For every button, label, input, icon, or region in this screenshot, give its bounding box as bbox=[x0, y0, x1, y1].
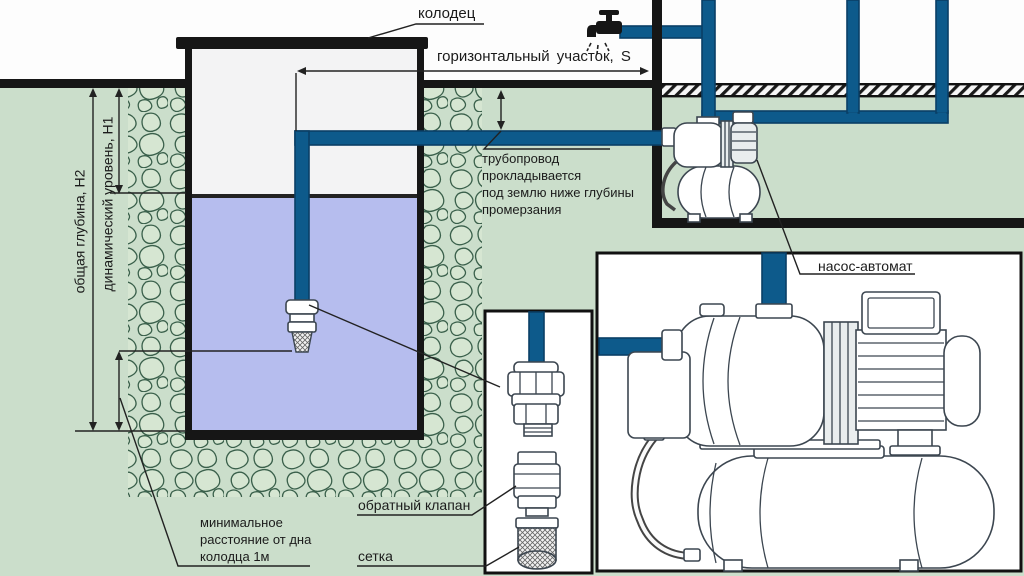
label-pipeline-note: трубопровод прокладывается под землю ниж… bbox=[482, 150, 634, 218]
basement-floor bbox=[652, 218, 1024, 228]
outlet-flange bbox=[756, 304, 792, 318]
label-check-valve: обратный клапан bbox=[358, 497, 470, 514]
diagram-stage: колодец горизонтальный участок, S трубоп… bbox=[0, 0, 1024, 576]
detail-outlet-pipe bbox=[762, 253, 786, 312]
floor-hatch bbox=[662, 83, 1024, 97]
label-horizontal-section: горизонтальный участок, S bbox=[437, 48, 631, 65]
well-wall-left bbox=[185, 49, 192, 440]
label-dynamic-level: динамический уровень, Н1 bbox=[100, 122, 117, 292]
label-strainer: сетка bbox=[358, 548, 393, 565]
pressure-tank bbox=[698, 456, 994, 568]
label-pump-station: насос-автомат bbox=[818, 258, 913, 275]
label-min-distance: минимальное расстояние от дна колодца 1м bbox=[200, 514, 311, 565]
outlet-riser bbox=[702, 0, 715, 124]
well-lid bbox=[176, 37, 428, 49]
pump-station-small bbox=[662, 112, 760, 222]
underground-pipe bbox=[295, 131, 680, 145]
valve-detail-pipe bbox=[529, 312, 544, 368]
stone-backfill-left bbox=[128, 88, 185, 440]
house-interior bbox=[662, 0, 1024, 83]
tap-branch-pipe bbox=[620, 26, 712, 38]
riser-2 bbox=[847, 0, 859, 113]
riser-3 bbox=[936, 0, 948, 113]
well-wall-right bbox=[417, 49, 424, 440]
ground-line-left bbox=[0, 79, 185, 88]
inlet-flange bbox=[662, 330, 682, 360]
ejector-housing bbox=[628, 352, 690, 438]
fan-cover bbox=[824, 322, 858, 444]
pump-body bbox=[676, 316, 824, 446]
motor-end-cap bbox=[944, 336, 980, 426]
house-wall bbox=[652, 0, 662, 228]
label-total-depth: общая глубина, Н2 bbox=[72, 169, 89, 295]
strainer-flange bbox=[516, 518, 558, 528]
ground-line-mid bbox=[424, 80, 652, 88]
motor bbox=[856, 330, 946, 430]
well-bottom bbox=[185, 430, 424, 440]
stone-backfill-bottom bbox=[128, 440, 482, 497]
label-well: колодец bbox=[418, 5, 475, 22]
well-drop-pipe bbox=[295, 131, 309, 303]
diagram-artwork bbox=[0, 0, 1024, 576]
